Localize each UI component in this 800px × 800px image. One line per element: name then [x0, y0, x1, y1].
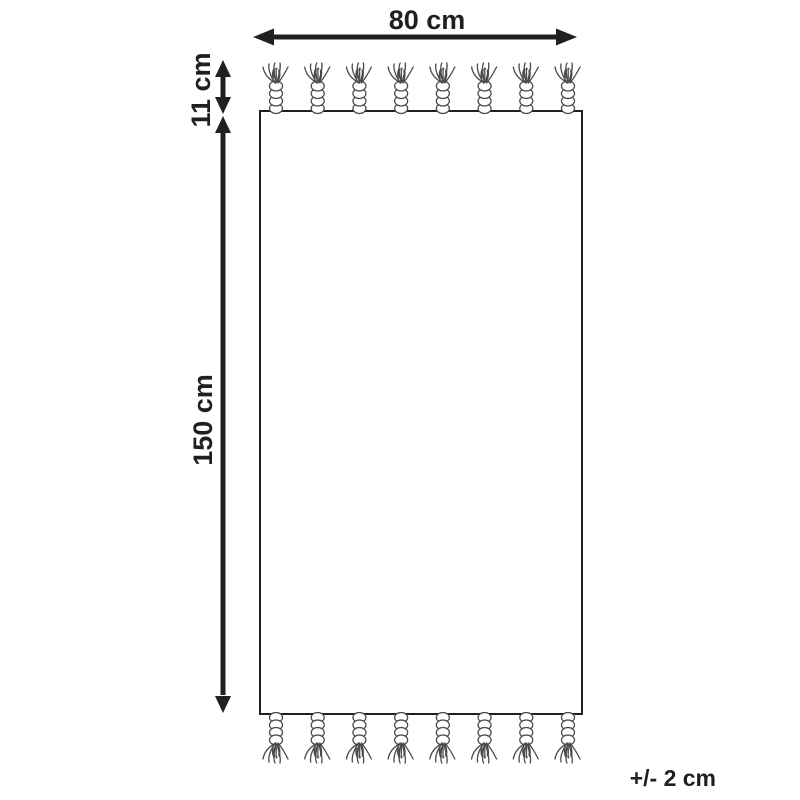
tassel-icon: [346, 63, 371, 114]
arrowhead-right-icon: [556, 29, 577, 46]
tassel-icon: [346, 713, 371, 764]
arrowhead-up-icon: [215, 116, 231, 133]
width-label: 80 cm: [389, 5, 466, 35]
tassel-icon: [472, 713, 497, 764]
tassel-icon: [513, 713, 538, 764]
tassel-icon: [263, 713, 288, 764]
tolerance-label: +/- 2 cm: [630, 765, 716, 791]
arrowhead-down-icon: [215, 696, 231, 713]
tassel-icon: [388, 63, 413, 114]
tassel-icon: [263, 63, 288, 114]
tassel-icon: [305, 63, 330, 114]
length-label: 150 cm: [188, 374, 218, 466]
tassel-icon: [555, 63, 580, 114]
tassel-icon: [472, 63, 497, 114]
arrowhead-down-icon: [215, 97, 231, 114]
arrowhead-up-icon: [215, 60, 231, 77]
tassel-icon: [430, 63, 455, 114]
dimension-diagram: 80 cm 11 cm 150 cm +/- 2 cm: [0, 0, 800, 800]
tassel-icon: [513, 63, 538, 114]
tassel-icon: [555, 713, 580, 764]
diagram-canvas: 80 cm 11 cm 150 cm +/- 2 cm: [0, 0, 800, 800]
fringe-label: 11 cm: [186, 52, 216, 127]
top-tassels: [263, 63, 580, 114]
bottom-tassels: [263, 713, 580, 764]
tassel-icon: [388, 713, 413, 764]
rug-outline: [260, 111, 582, 714]
tassel-icon: [430, 713, 455, 764]
fringe-dimension-arrow: [215, 60, 231, 114]
arrowhead-left-icon: [253, 29, 274, 46]
tassel-icon: [305, 713, 330, 764]
